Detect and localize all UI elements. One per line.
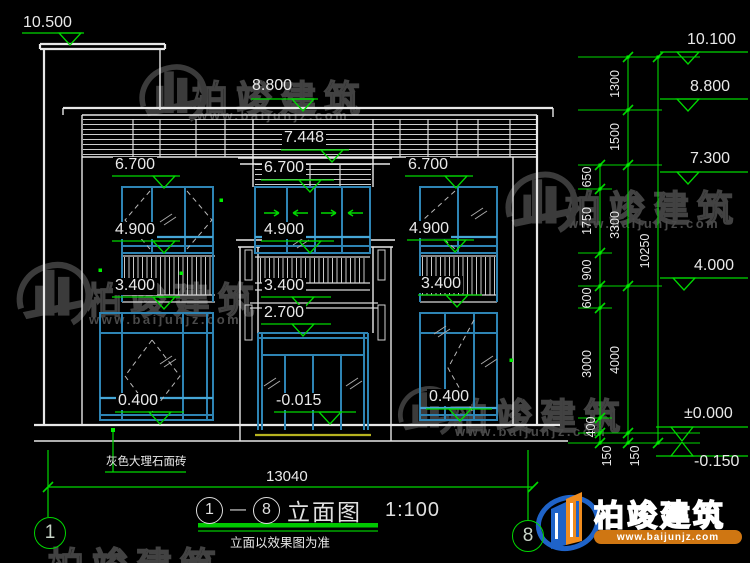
- dim-width-13040: 13040: [266, 469, 308, 485]
- elev-6700-right: 6.700: [406, 157, 450, 174]
- elev-minus-0015: -0.015: [274, 393, 323, 410]
- window-transoms: [100, 237, 497, 408]
- dim-900: 900: [580, 260, 594, 281]
- sliding-arrows: [264, 210, 363, 216]
- dim-600: 600: [580, 288, 594, 309]
- watermark-logo-icon: [20, 265, 89, 323]
- elev-6700-center: 6.700: [262, 160, 306, 177]
- pilaster-slots: [245, 250, 385, 340]
- dim-1750: 1750: [580, 207, 594, 235]
- material-note: 灰色大理石面砖: [106, 456, 187, 468]
- grid-bubble-1: 1: [34, 517, 66, 549]
- brand-name: 柏竣建筑: [594, 491, 726, 535]
- dim-4000: 4000: [608, 346, 622, 374]
- watermark-logo-icon: [509, 175, 575, 231]
- dim-3300: 3300: [608, 211, 622, 239]
- title-name: 立面图: [287, 493, 362, 527]
- dimension-chain-lines: [568, 57, 700, 443]
- elev-6700-left: 6.700: [113, 157, 157, 174]
- elev-zero: ±0.000: [684, 406, 733, 423]
- title-grid-start-bubble: 1: [196, 497, 223, 524]
- watermark-logo-icon: [142, 67, 205, 119]
- disclaimer-note: 立面以效果图为准: [230, 537, 330, 550]
- cad-elevation-drawing: 柏竣建筑 www.baijunjz.com 柏竣建筑 www.baijunjz.…: [0, 0, 750, 563]
- elev-7448: 7.448: [282, 130, 326, 147]
- elev-0400-left: 0.400: [116, 393, 160, 410]
- title-dash: —: [230, 501, 246, 519]
- elev-2700: 2.700: [262, 305, 306, 322]
- title-scale: 1:100: [385, 499, 440, 522]
- elev-3400-center: 3.400: [262, 278, 306, 295]
- dim-1500: 1500: [608, 123, 622, 151]
- elev-3400-left: 3.400: [113, 278, 157, 295]
- elev-8800-right: 8.800: [690, 79, 730, 96]
- dim-400: 400: [584, 417, 598, 438]
- dim-650: 650: [580, 167, 594, 188]
- elev-minus-0150: -0.150: [694, 454, 739, 471]
- elev-0400-right: 0.400: [427, 389, 471, 406]
- dim-150-a: 150: [600, 446, 614, 467]
- drawing-title: 1 — 8 立面图 1:100: [196, 493, 440, 527]
- elev-4000: 4.000: [694, 258, 734, 275]
- dim-150-b: 150: [628, 446, 642, 467]
- dim-3000: 3000: [580, 350, 594, 378]
- brand-url: www.baijunjz.com: [594, 530, 742, 544]
- dim-10250: 10250: [638, 234, 652, 269]
- elev-8800-top: 8.800: [252, 78, 292, 95]
- elev-7300: 7.300: [690, 151, 730, 168]
- elev-4900-right: 4.900: [407, 221, 451, 238]
- elev-3400-right: 3.400: [419, 276, 463, 293]
- grid-bubble-8: 8: [512, 520, 544, 552]
- elev-10500: 10.500: [23, 15, 72, 32]
- title-grid-end-bubble: 8: [253, 497, 280, 524]
- elev-10100: 10.100: [687, 32, 736, 49]
- elev-4900-left: 4.900: [113, 222, 157, 239]
- dim-1300: 1300: [608, 70, 622, 98]
- elev-4900-center: 4.900: [262, 222, 306, 239]
